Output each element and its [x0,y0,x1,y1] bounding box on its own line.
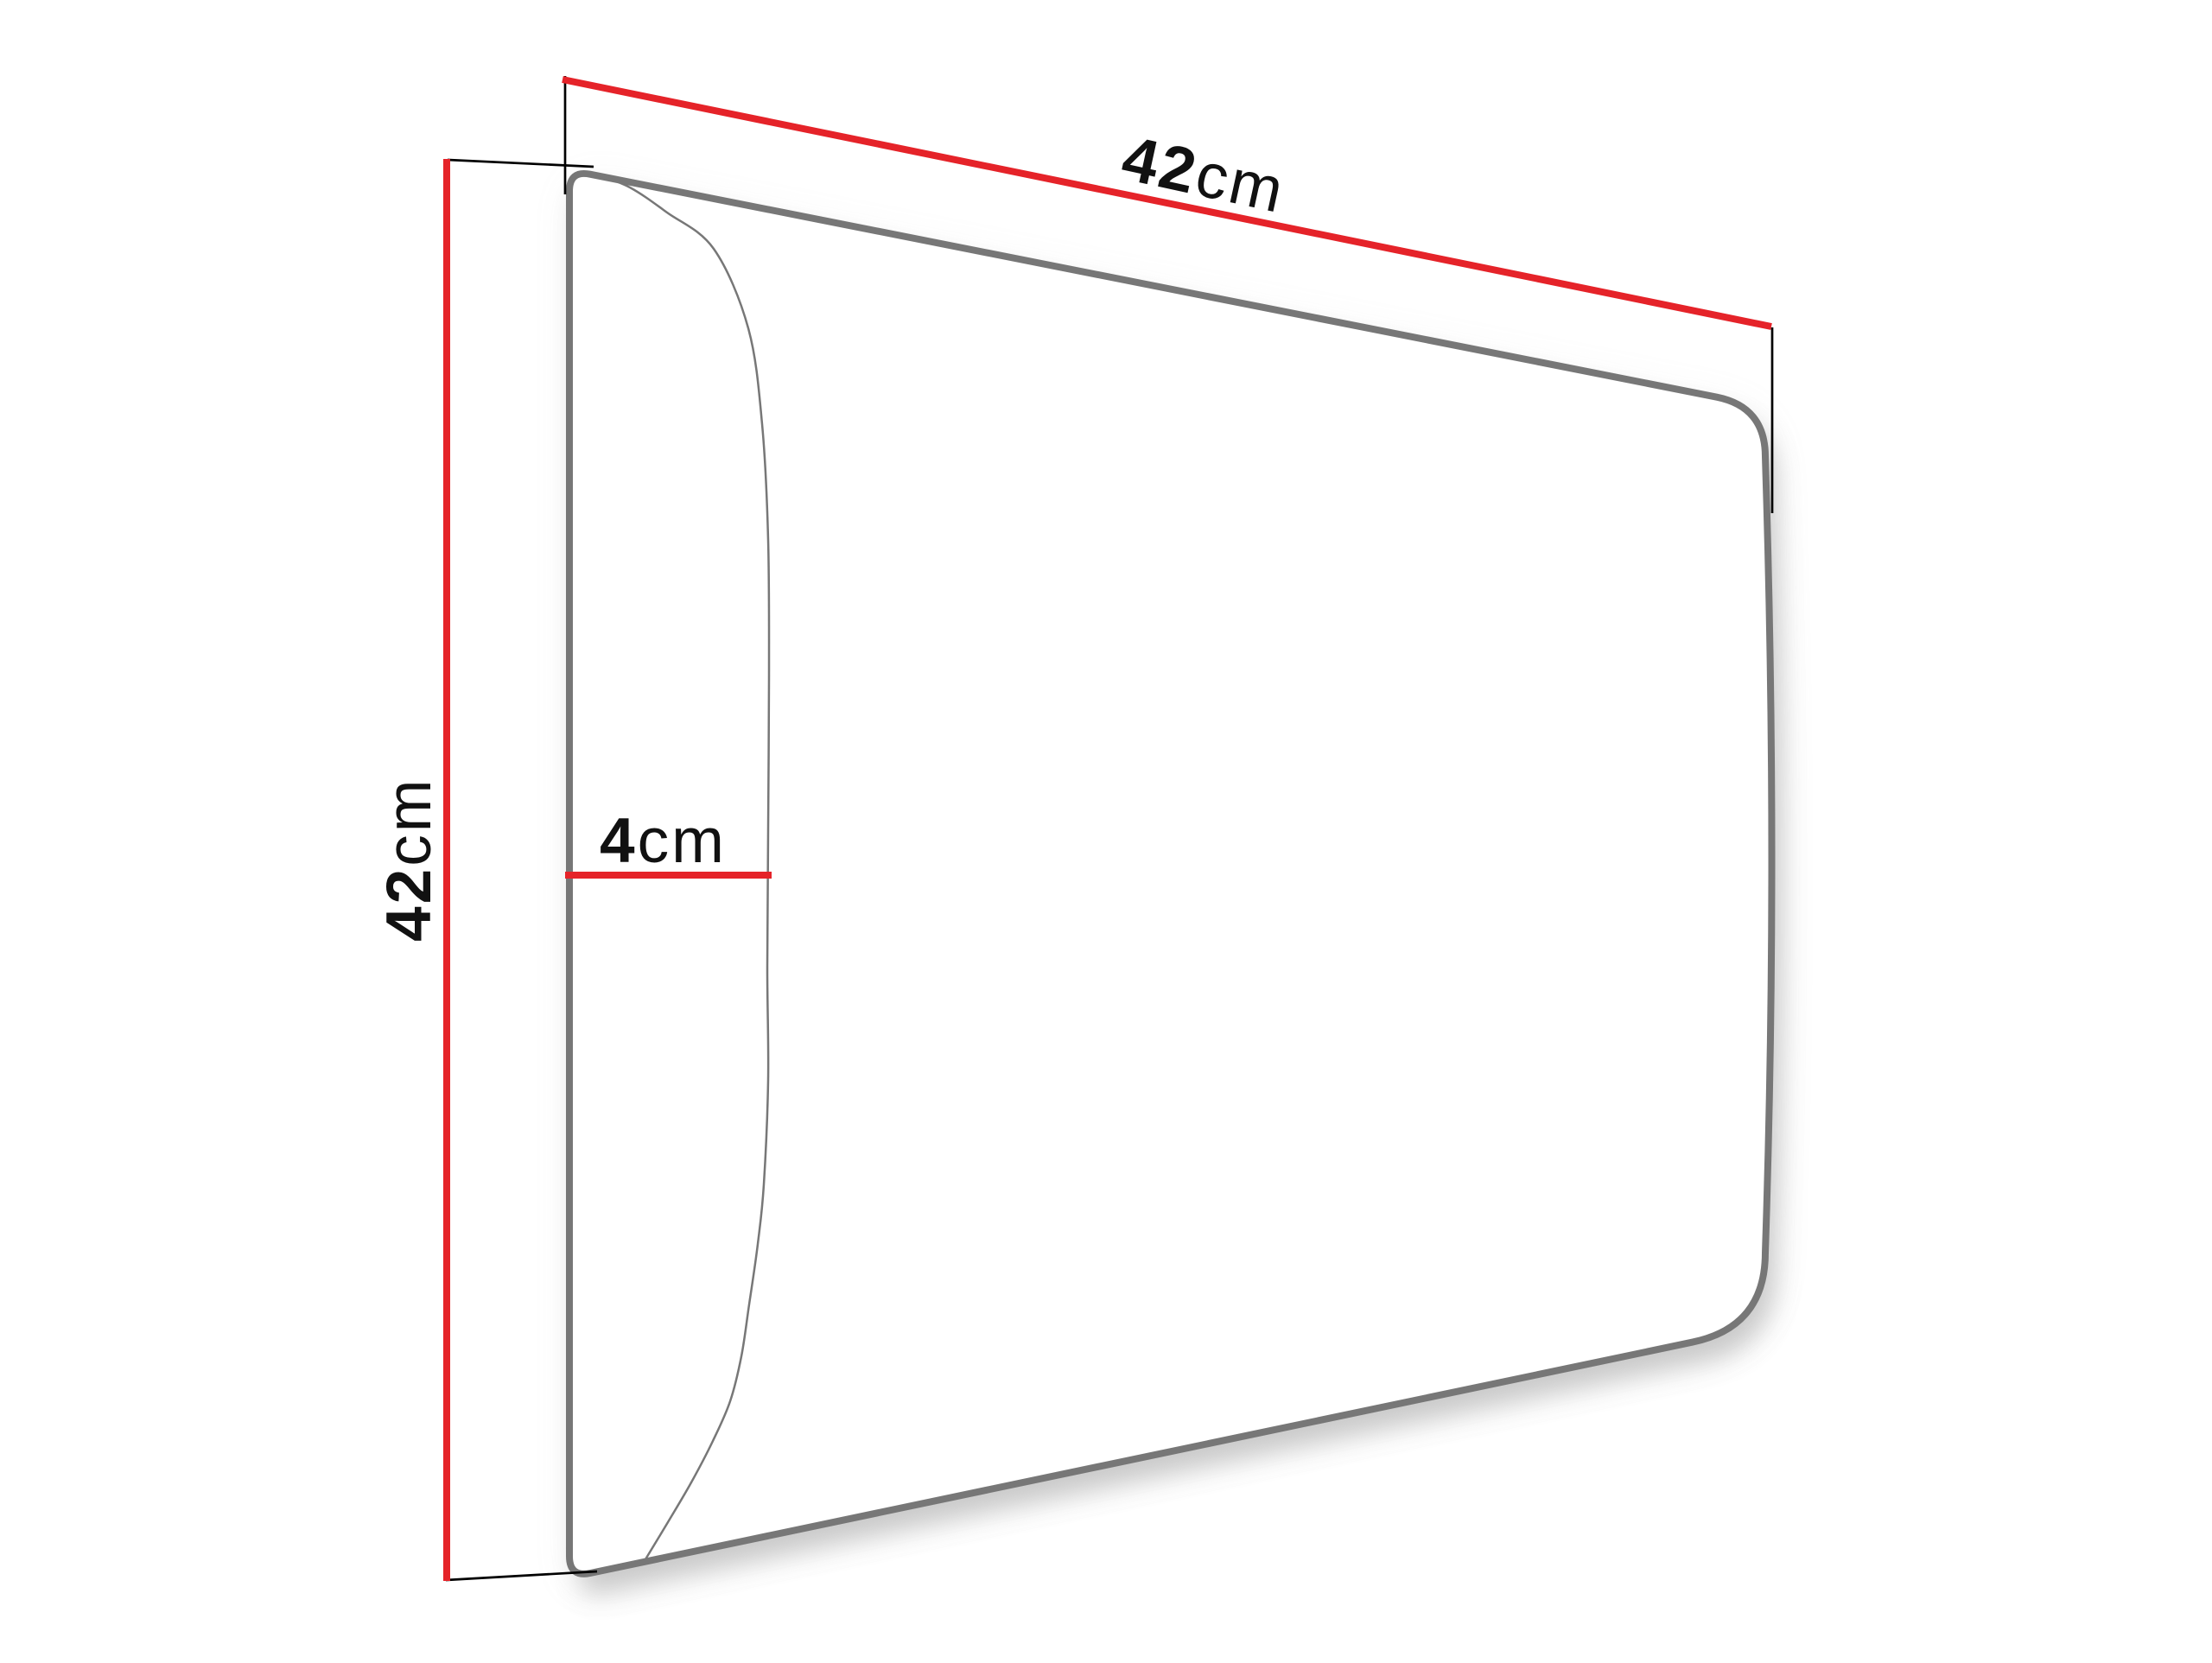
svg-text:42cm: 42cm [374,777,444,942]
svg-text:4cm: 4cm [600,806,727,876]
